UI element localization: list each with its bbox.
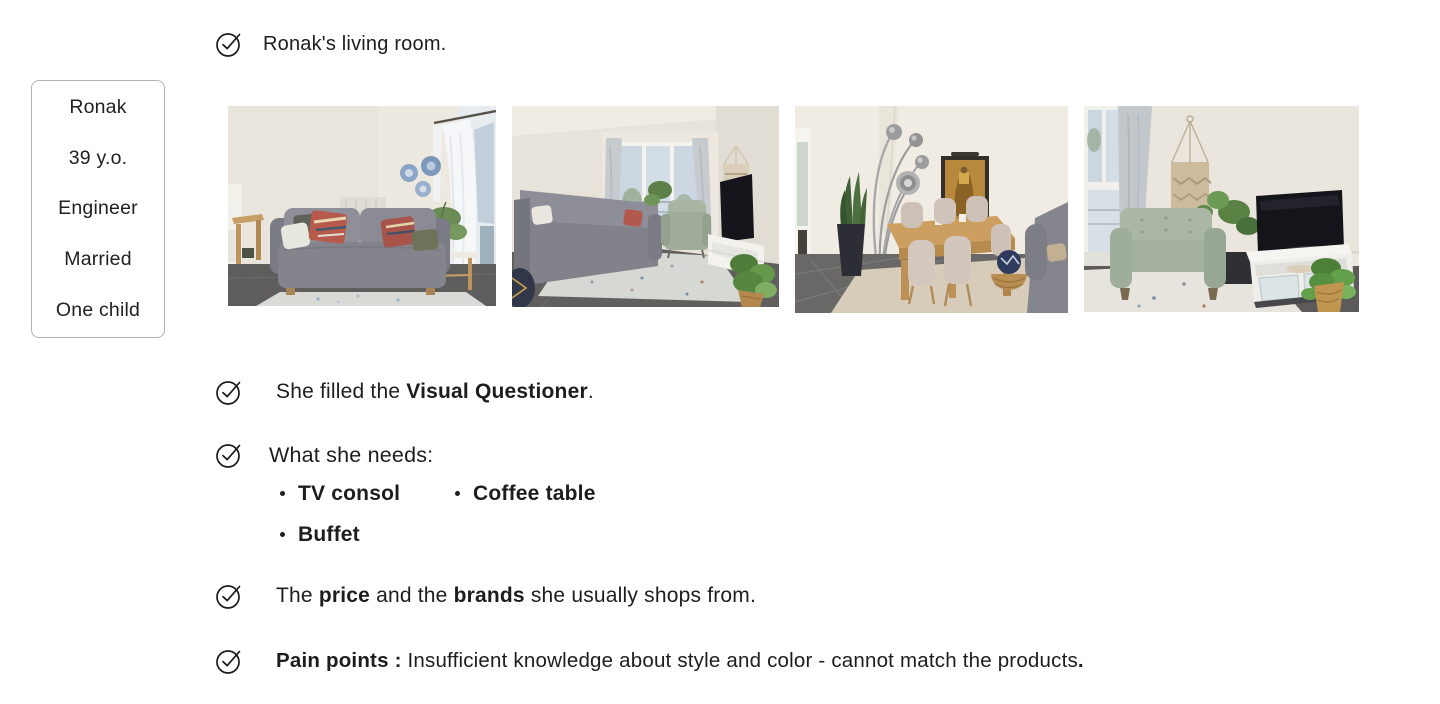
need-item-tv-consol: TV consol xyxy=(280,480,455,507)
check-circle-icon xyxy=(215,647,243,675)
profile-card: Ronak 39 y.o. Engineer Married One child xyxy=(31,80,165,338)
checklist-item-living-room: Ronak's living room. xyxy=(215,30,446,58)
checklist-item-pain-points: Pain points : Insufficient knowledge abo… xyxy=(215,647,1084,675)
profile-name: Ronak xyxy=(36,96,160,119)
tv-corner-illustration xyxy=(1084,106,1359,312)
dining-area-illustration xyxy=(795,106,1068,313)
checklist-item-visual-questioner: She filled the Visual Questioner. xyxy=(215,378,594,406)
checklist-item-text: Pain points : Insufficient knowledge abo… xyxy=(276,649,1084,673)
checklist-item-needs: What she needs: xyxy=(215,441,433,469)
needs-list: TV consol Coffee table Buffet xyxy=(280,480,596,548)
need-item-label: TV consol xyxy=(298,482,400,506)
need-item-label: Buffet xyxy=(298,523,360,547)
profile-children: One child xyxy=(36,299,160,322)
check-circle-icon xyxy=(215,582,243,610)
sofa-view-illustration xyxy=(228,106,496,306)
need-item-buffet: Buffet xyxy=(280,521,455,548)
check-circle-icon xyxy=(215,378,243,406)
checklist-item-text: She filled the Visual Questioner. xyxy=(276,380,594,404)
persona-slide: Ronak 39 y.o. Engineer Married One child… xyxy=(0,0,1440,704)
checklist-item-price-brands: The price and the brands she usually sho… xyxy=(215,582,756,610)
check-circle-icon xyxy=(215,30,243,58)
check-circle-icon xyxy=(215,441,243,469)
bullet-dot-icon xyxy=(280,532,285,537)
checklist-item-text: The price and the brands she usually sho… xyxy=(276,584,756,608)
bullet-dot-icon xyxy=(280,491,285,496)
living-room-photo-sofa xyxy=(228,106,496,306)
bullet-dot-icon xyxy=(455,491,460,496)
profile-occupation: Engineer xyxy=(36,197,160,220)
living-room-photo-dining xyxy=(795,106,1068,313)
room-overview-illustration xyxy=(512,106,779,307)
profile-marital-status: Married xyxy=(36,248,160,271)
living-room-photo-tv-corner xyxy=(1084,106,1359,312)
need-item-label: Coffee table xyxy=(473,482,596,506)
living-room-photo-overview xyxy=(512,106,779,307)
checklist-item-text: Ronak's living room. xyxy=(263,33,446,56)
profile-age: 39 y.o. xyxy=(36,147,160,170)
living-room-photo-strip xyxy=(228,106,1359,313)
checklist-item-text: What she needs: xyxy=(269,443,433,468)
need-item-coffee-table: Coffee table xyxy=(455,480,596,507)
